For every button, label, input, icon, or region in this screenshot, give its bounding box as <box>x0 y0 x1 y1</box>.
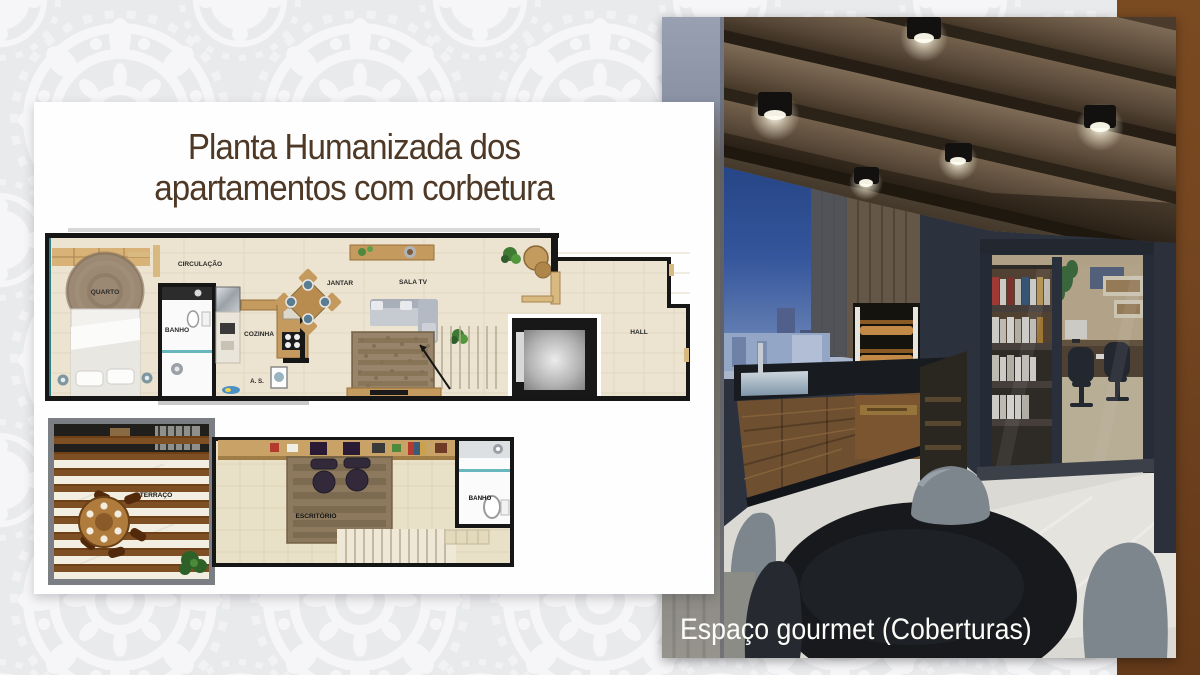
svg-text:TERRAÇO: TERRAÇO <box>140 492 173 499</box>
svg-text:COZINHA: COZINHA <box>244 331 274 338</box>
svg-text:CIRCULAÇÃO: CIRCULAÇÃO <box>178 259 222 268</box>
svg-text:ESCRITÓRIO: ESCRITÓRIO <box>295 511 336 520</box>
svg-text:QUARTO: QUARTO <box>91 289 119 296</box>
svg-text:JANTAR: JANTAR <box>327 280 353 287</box>
svg-text:HALL: HALL <box>630 329 648 336</box>
svg-text:A. S.: A. S. <box>250 378 264 385</box>
svg-text:BANHO: BANHO <box>165 327 189 334</box>
svg-text:BANHO: BANHO <box>469 495 492 502</box>
svg-text:SALA TV: SALA TV <box>399 279 428 286</box>
